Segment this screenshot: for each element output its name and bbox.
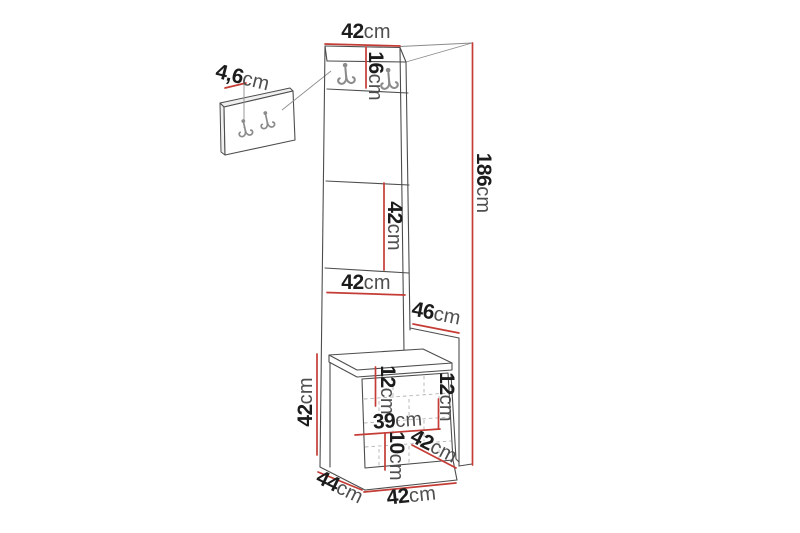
dim-label-seat-inset: 12cm <box>376 365 399 414</box>
diagram-canvas: 42cm 16cm 4,6cm 42cm 42cm 46cm 186cm 42c… <box>0 0 800 533</box>
bench-floor-right-join <box>453 460 457 480</box>
dim-label-top-width: 42cm <box>341 20 390 43</box>
dim-label-bench-width: 42cm <box>386 482 438 510</box>
dim-label-hook-panel-height: 16cm <box>364 51 387 100</box>
wall-hook-panel <box>220 88 295 155</box>
panel-division-line <box>326 181 409 185</box>
dimension-diagram: 42cm 16cm 4,6cm 42cm 42cm 46cm 186cm 42c… <box>0 0 800 533</box>
dim-label-plinth-height: 10cm <box>385 431 408 480</box>
dim-label-panel-width: 42cm <box>341 271 390 294</box>
dimension-labels: 42cm 16cm 4,6cm 42cm 42cm 46cm 186cm 42c… <box>213 20 495 510</box>
dim-label-wall-panel-depth: 4,6cm <box>213 60 272 96</box>
side-panel-top-edge <box>410 328 459 338</box>
column-cap-right-join <box>400 48 406 63</box>
dim-label-upper-panel-height: 42cm <box>383 201 406 250</box>
dim-label-total-height: 186cm <box>472 153 495 214</box>
dim-label-base-depth: 44cm <box>313 466 368 508</box>
dim-label-bench-height: 42cm <box>294 377 317 426</box>
double-hook-icon <box>337 62 355 84</box>
column-right-back-edge <box>406 62 410 330</box>
column-left-edge <box>320 46 325 467</box>
side-panel-floor-edge <box>459 464 472 466</box>
dim-label-compartment-height: 12cm <box>435 372 458 421</box>
